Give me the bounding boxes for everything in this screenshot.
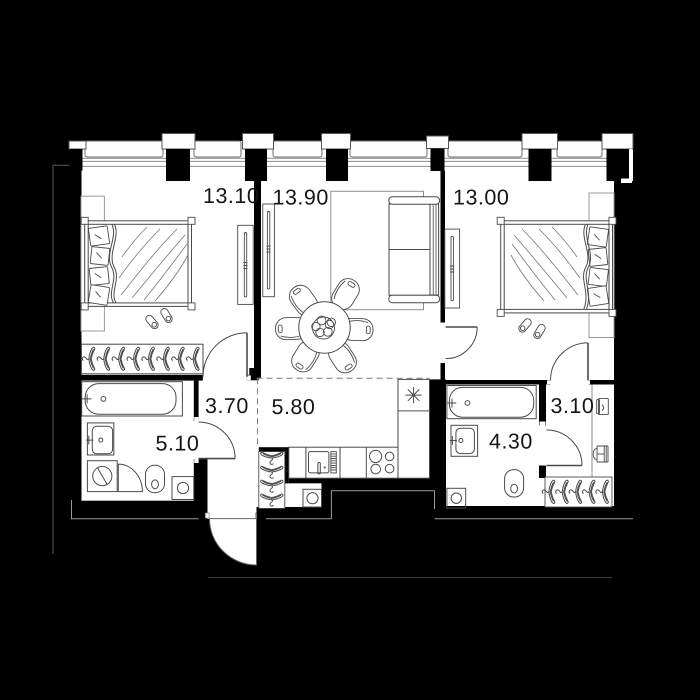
svg-text:5.80: 5.80	[272, 395, 316, 419]
svg-text:4.30: 4.30	[489, 430, 533, 454]
svg-text:13.10: 13.10	[203, 184, 259, 208]
svg-text:5.10: 5.10	[156, 432, 200, 456]
svg-text:13.90: 13.90	[273, 186, 329, 210]
svg-text:13.00: 13.00	[453, 186, 509, 210]
svg-text:3.10: 3.10	[551, 394, 595, 418]
svg-text:3.70: 3.70	[205, 394, 249, 418]
